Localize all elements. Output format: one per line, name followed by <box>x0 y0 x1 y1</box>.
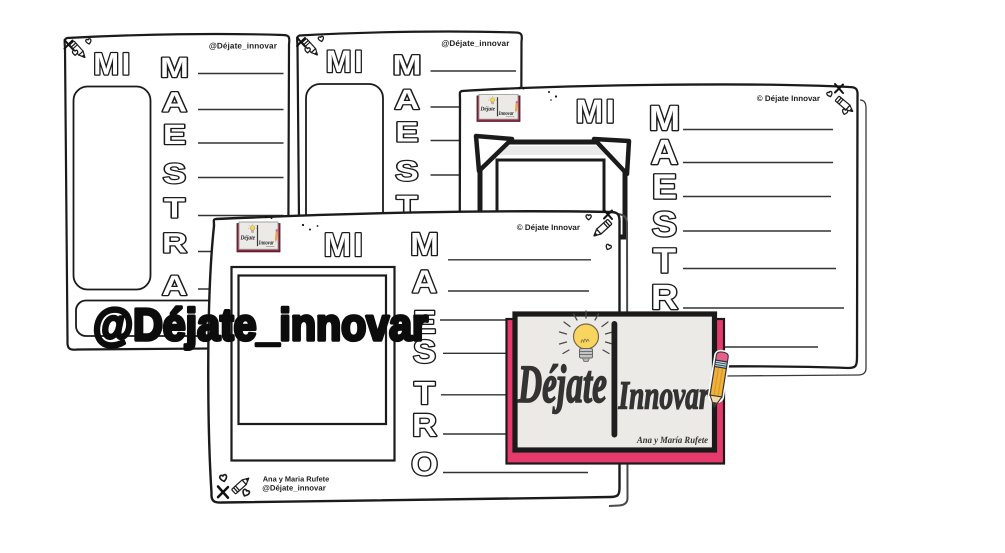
svg-text:S: S <box>163 158 186 189</box>
svg-text:T: T <box>414 375 436 411</box>
svg-text:T: T <box>653 241 676 280</box>
svg-text:MI: MI <box>93 47 132 82</box>
svg-text:A: A <box>162 87 187 118</box>
svg-text:S: S <box>652 205 677 244</box>
svg-text:Déjate: Déjate <box>517 354 607 414</box>
svg-text:O: O <box>411 446 438 482</box>
svg-text:@Déjate_innovar: @Déjate_innovar <box>209 42 278 51</box>
svg-text:R: R <box>412 407 437 443</box>
svg-text:Innovar: Innovar <box>618 373 710 418</box>
svg-text:A: A <box>412 264 437 300</box>
svg-text:T: T <box>164 193 185 224</box>
svg-text:R: R <box>651 278 678 317</box>
svg-text:Ana y María Rufete: Ana y María Rufete <box>636 436 709 446</box>
svg-text:@Déjate_innovar: @Déjate_innovar <box>262 484 326 493</box>
svg-text:E: E <box>163 119 186 150</box>
svg-text:R: R <box>162 228 187 259</box>
svg-text:© Déjate Innovar: © Déjate Innovar <box>757 94 820 103</box>
svg-text:M: M <box>160 52 189 83</box>
svg-text:MI: MI <box>324 226 366 263</box>
svg-text:MI: MI <box>576 93 618 130</box>
svg-text:E: E <box>652 167 677 206</box>
svg-text:A: A <box>651 133 678 172</box>
svg-text:M: M <box>410 226 439 262</box>
svg-text:© Déjate Innovar: © Déjate Innovar <box>517 223 580 232</box>
svg-text:A: A <box>162 270 187 301</box>
svg-text:Ana y Maria Rufete: Ana y Maria Rufete <box>263 475 330 484</box>
svg-text:@Déjate_innovar: @Déjate_innovar <box>93 299 428 350</box>
